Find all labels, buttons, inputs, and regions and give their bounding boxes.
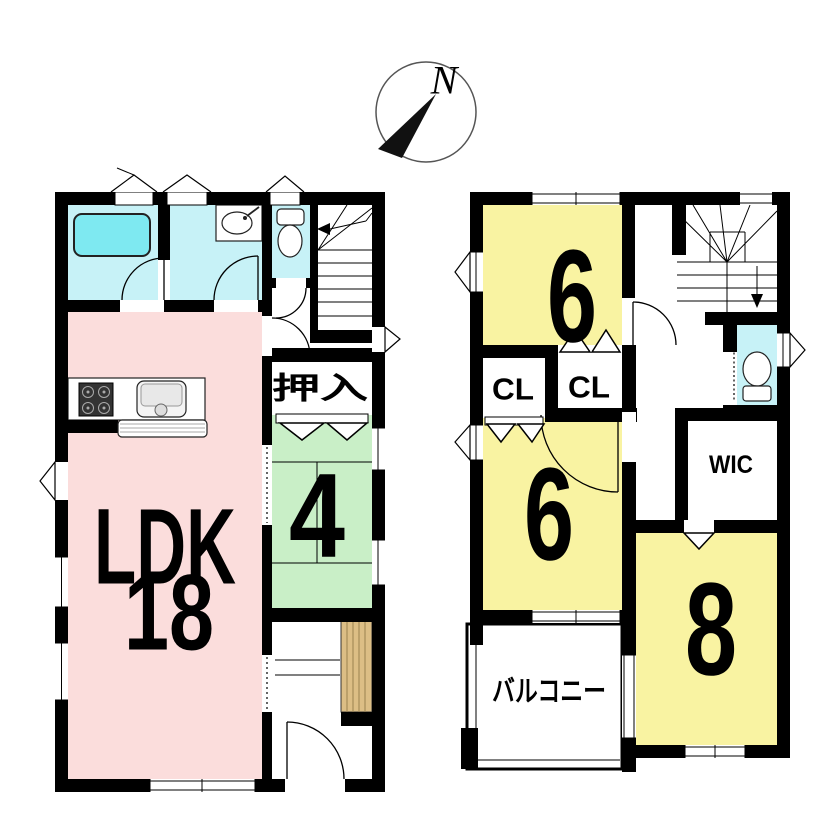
counter-wall xyxy=(68,420,118,433)
floor-plan-1f: LDK 18 4 押入 xyxy=(40,168,400,792)
window-ldk-left-small xyxy=(55,462,68,500)
tatami-size-label: 4 xyxy=(289,449,345,583)
oshiire-label: 押入 xyxy=(272,373,368,406)
toilet-icon-2f xyxy=(743,352,771,401)
floor-plan-canvas: N xyxy=(0,0,840,820)
window-stair-right xyxy=(372,327,385,352)
toilet-icon-1f xyxy=(277,209,304,257)
stairs-2f xyxy=(677,205,777,312)
bathtub-icon xyxy=(74,214,150,256)
washroom-door-gap xyxy=(214,300,258,312)
kitchen-counter xyxy=(68,378,207,437)
floor-plan-page: N xyxy=(0,0,840,820)
washbasin-icon xyxy=(216,205,262,241)
window-marker-icon xyxy=(455,252,470,292)
bedroom-6-top-label: 6 xyxy=(547,223,597,370)
entrance-door-gap xyxy=(285,779,345,792)
bedroom-8-label: 8 xyxy=(685,556,737,703)
bedroom-6top-door-arc xyxy=(633,302,676,345)
floor-plan-2f: 6 6 8 CL CL WIC バルコニー xyxy=(455,192,805,772)
window-marker-icon xyxy=(385,327,400,352)
window-marker-icon xyxy=(455,425,470,460)
window-marker-icon xyxy=(40,462,55,500)
closet-cl1-label: CL xyxy=(492,372,534,407)
compass: N xyxy=(376,58,476,163)
wic-label: WIC xyxy=(709,451,753,479)
hall-ldk-door-gap xyxy=(262,316,272,356)
genkan-step-lines xyxy=(275,660,340,675)
bath-door-gap xyxy=(120,300,164,312)
toilet-door-gap xyxy=(276,278,306,288)
toilet-door-arc xyxy=(276,288,306,318)
bedroom-6mid-door-gap xyxy=(622,412,636,462)
vent-window-icons xyxy=(111,168,304,205)
ldk-size-label: 18 xyxy=(124,552,214,673)
north-label: N xyxy=(430,58,460,103)
window-marker-icon xyxy=(790,333,805,367)
balcony-label: バルコニー xyxy=(492,676,606,708)
kitchen-sink-icon xyxy=(137,381,186,417)
stairs-up-arrow-icon xyxy=(317,223,330,235)
entrance-door-arc xyxy=(287,722,344,779)
closet-cl2-label: CL xyxy=(568,370,610,405)
stove-icon xyxy=(79,383,113,416)
wood-deck xyxy=(341,618,372,712)
bedroom-6-mid-label: 6 xyxy=(524,441,574,588)
stairs-1f xyxy=(317,205,372,316)
